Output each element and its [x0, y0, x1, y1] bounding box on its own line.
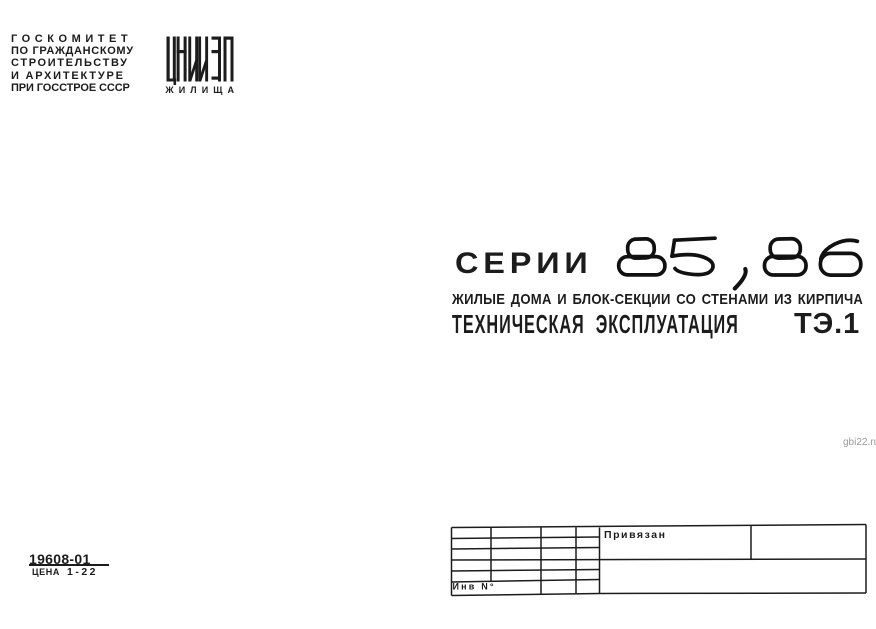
- svg-text:ЖИЛИЩА: ЖИЛИЩА: [165, 85, 240, 95]
- svg-text:Инв N°: Инв N°: [453, 582, 496, 592]
- svg-text:Привязан: Привязан: [604, 529, 667, 541]
